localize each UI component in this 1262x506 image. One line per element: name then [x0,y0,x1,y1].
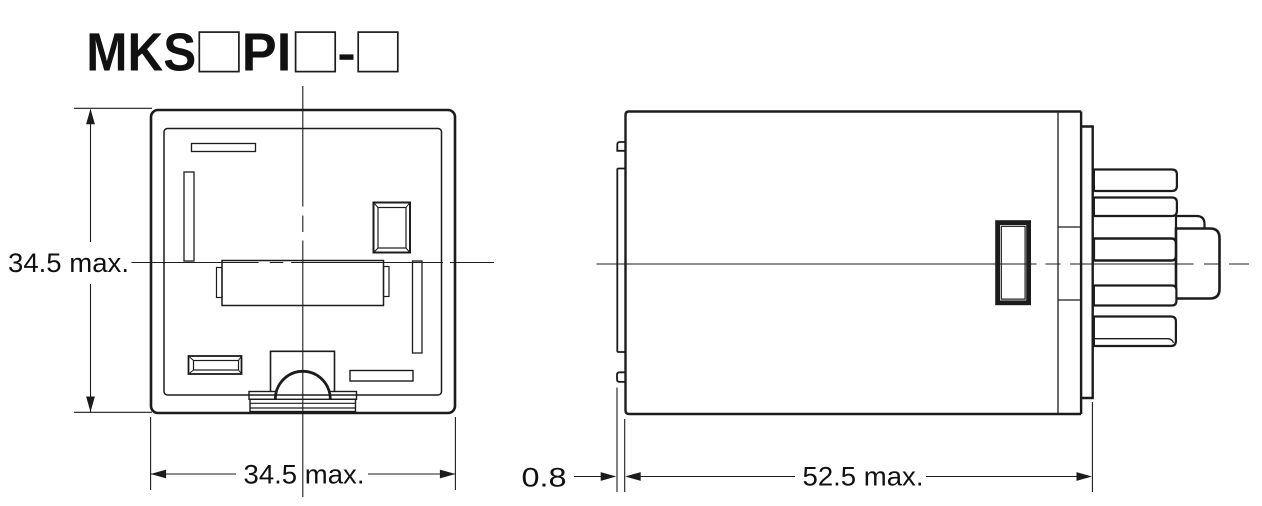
svg-text:34.5 max.: 34.5 max. [244,460,365,490]
svg-text:34.5 max.: 34.5 max. [8,248,129,278]
svg-text:PI: PI [242,23,291,83]
svg-text:0.8: 0.8 [522,462,567,492]
svg-text:MKS: MKS [86,23,196,83]
svg-text:52.5 max.: 52.5 max. [803,462,924,492]
